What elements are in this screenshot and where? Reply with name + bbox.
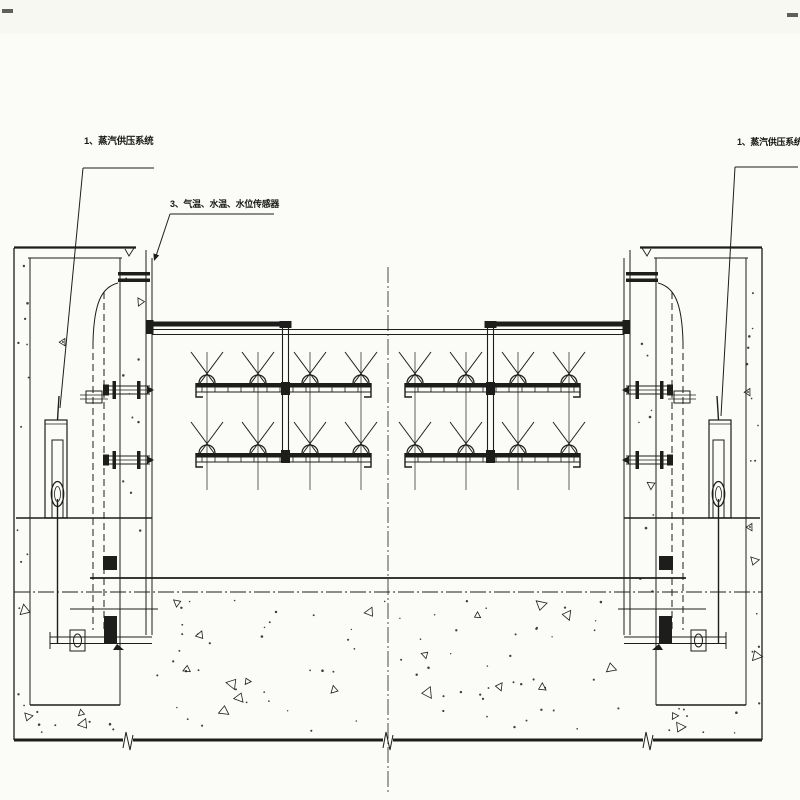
leader-right-system [721, 167, 798, 416]
tank-top-band [147, 320, 389, 335]
label-steam-supply-left: 1、蒸汽供压系统 [84, 136, 153, 148]
spray-bars [191, 352, 377, 490]
reference-lines [2, 9, 798, 795]
drawing-canvas [0, 0, 800, 800]
left-wall-assembly [14, 248, 388, 741]
cylinder [45, 396, 67, 644]
drain-pipe-valve [50, 630, 152, 651]
concrete-stipple [17, 265, 763, 734]
label-steam-supply-right: 1、蒸汽供压系统 [737, 136, 800, 148]
label-sensors: 3、气温、水温、水位传感器 [170, 198, 279, 210]
steam-tank-cross-section-drawing: 1、蒸汽供压系统 3、气温、水温、水位传感器 1、蒸汽供压系统 [0, 0, 800, 800]
right-wall-assembly [388, 248, 762, 741]
leader-sensors [153, 214, 274, 261]
corner-mark-right [787, 13, 798, 17]
leader-left-system [60, 168, 154, 408]
corner-mark-left [2, 9, 13, 13]
